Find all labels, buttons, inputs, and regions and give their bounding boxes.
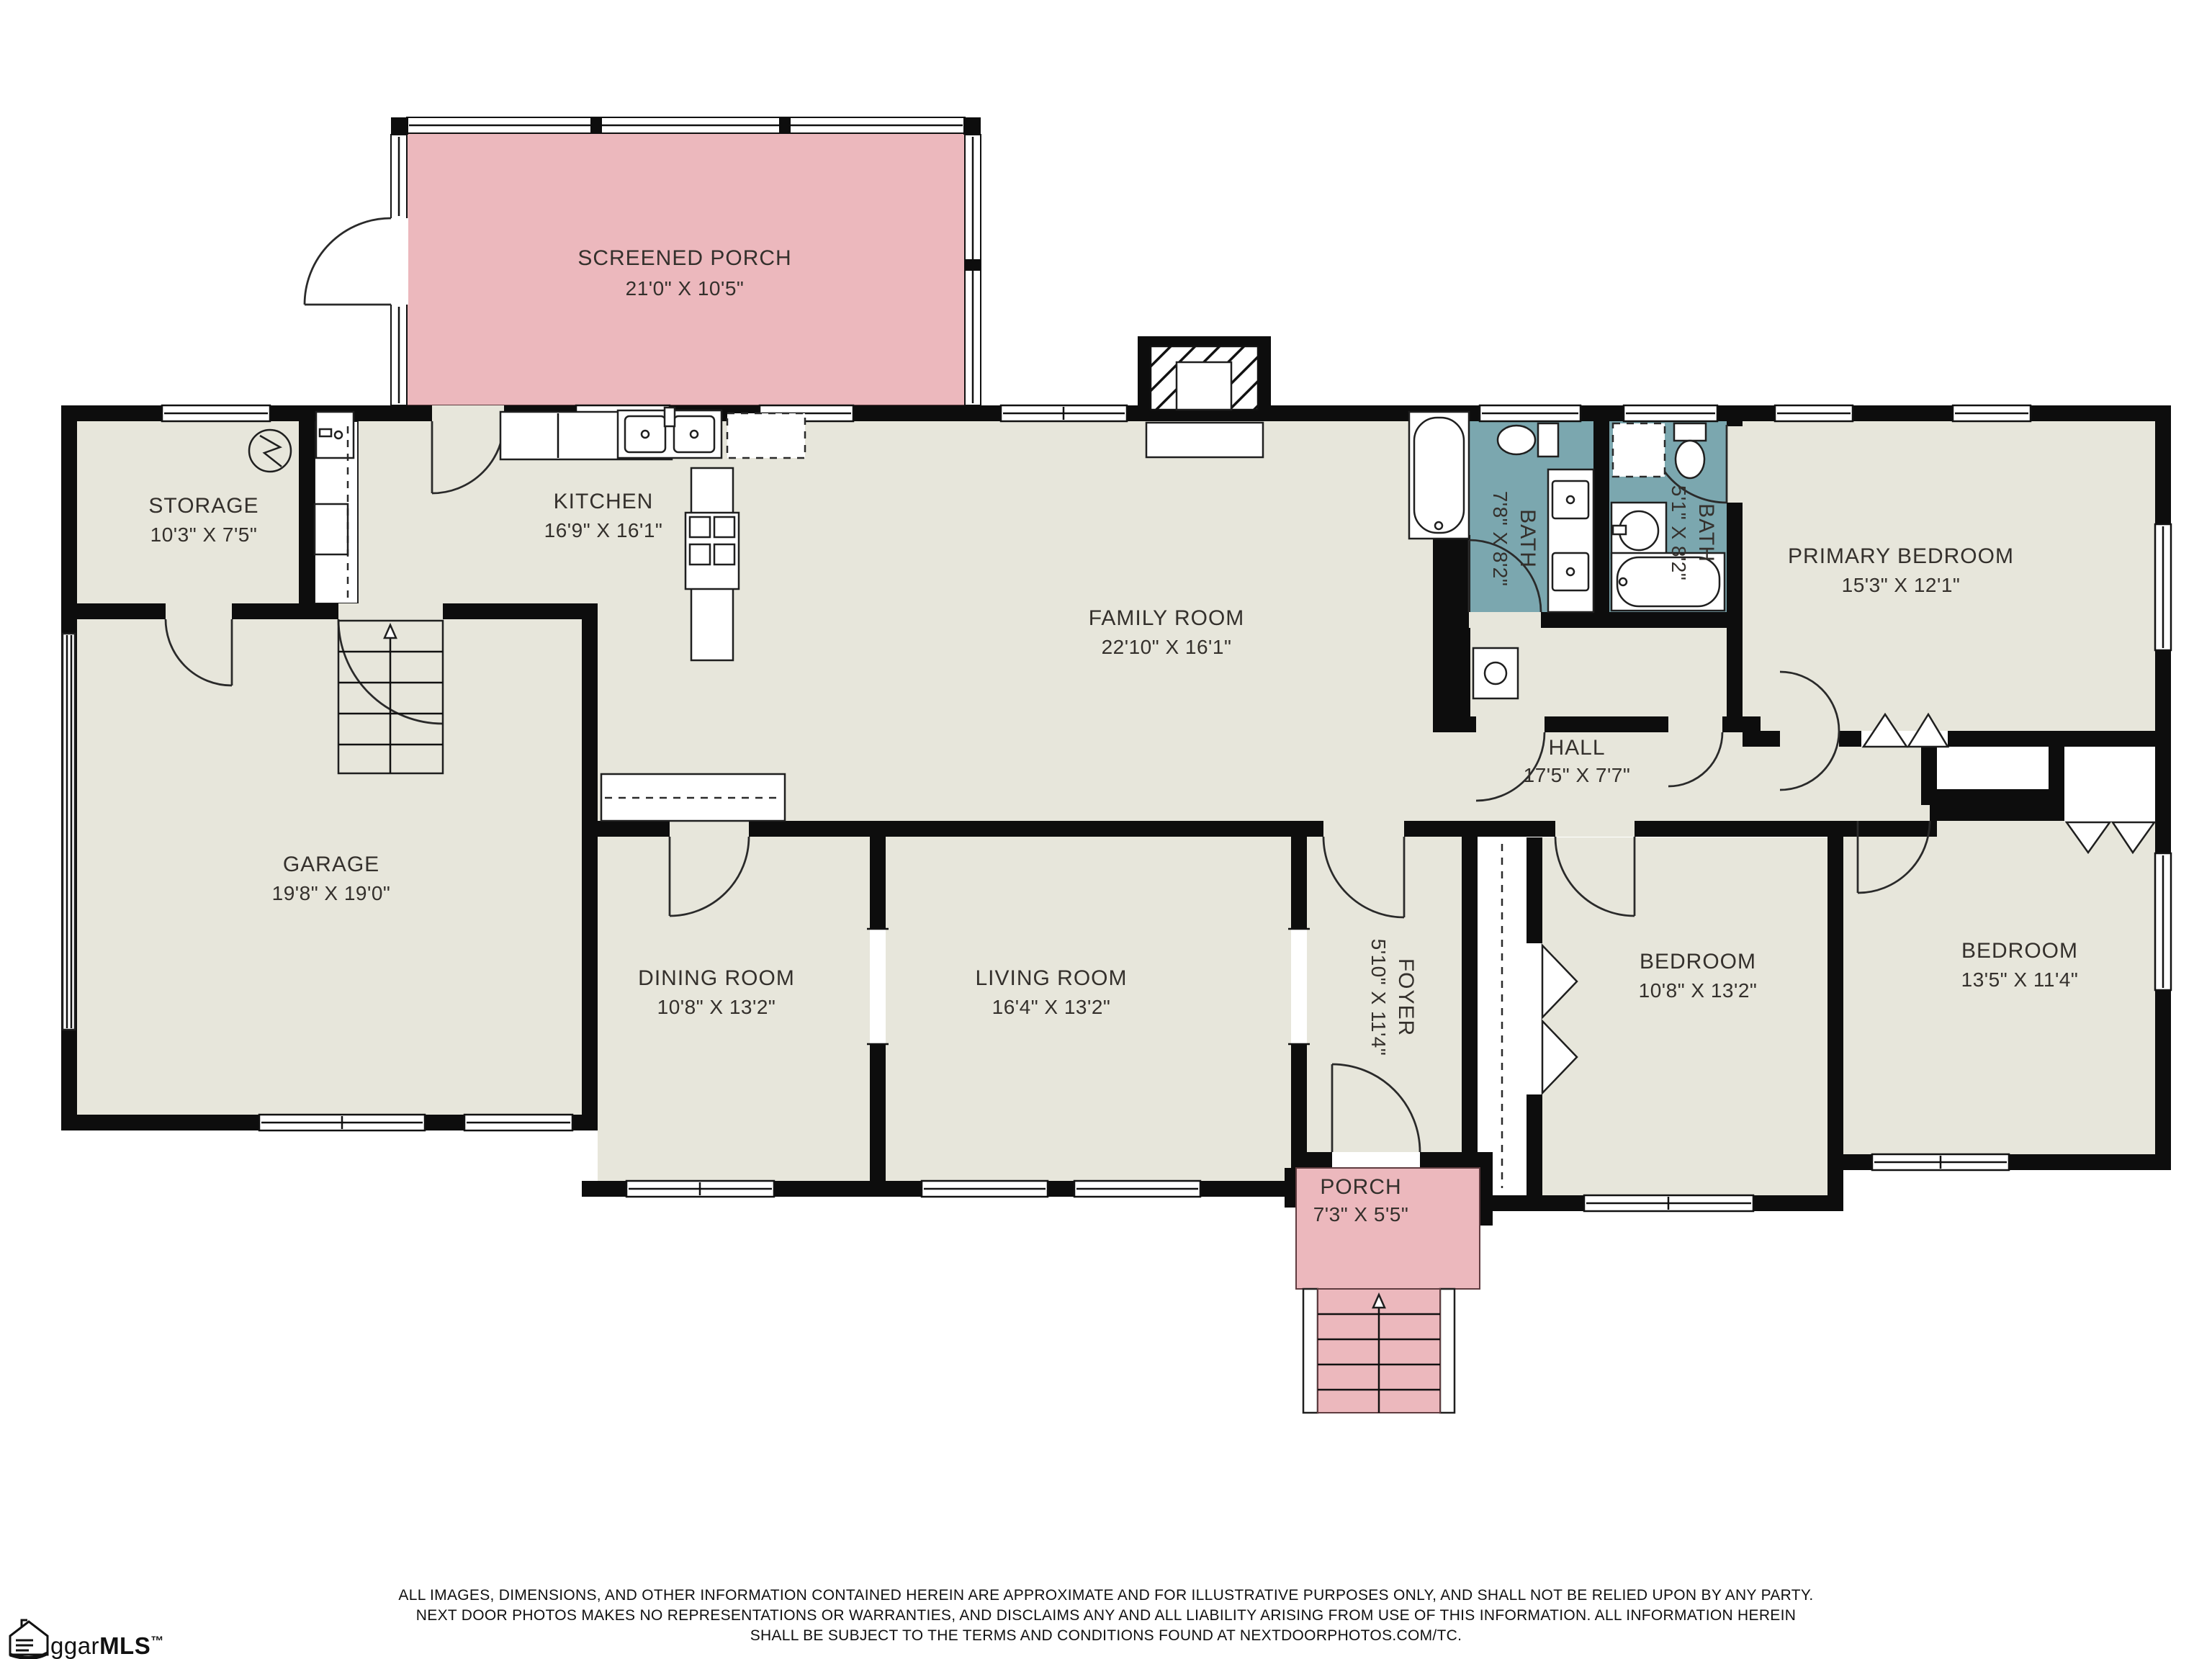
- fireplace: [1146, 346, 1263, 457]
- laundry-box: [1473, 648, 1518, 698]
- kitchen-island: [685, 468, 739, 660]
- footer-disclaimer: ALL IMAGES, DIMENSIONS, AND OTHER INFORM…: [398, 1587, 1813, 1644]
- window: [2155, 524, 2171, 650]
- floor-plan: SCREENED PORCH21'0" X 10'5" STORAGE10'3"…: [0, 0, 2212, 1659]
- porch-door-opening: [390, 218, 408, 305]
- window: [1480, 405, 1581, 421]
- footer-line-1: ALL IMAGES, DIMENSIONS, AND OTHER INFORM…: [398, 1587, 1813, 1604]
- window: [922, 1181, 1048, 1197]
- window: [162, 405, 270, 421]
- porch-steps: [1318, 1289, 1440, 1413]
- window: [1872, 1154, 2009, 1170]
- kitchen-sink: [618, 408, 721, 458]
- vanity-1: [1548, 469, 1593, 612]
- peninsula-counter: [601, 774, 785, 821]
- window: [1953, 405, 2031, 421]
- window: [1624, 405, 1717, 421]
- toilet-2: [1674, 423, 1706, 478]
- mls-logo: ggarMLS™: [10, 1620, 164, 1659]
- footer-line-2: NEXT DOOR PHOTOS MAKES NO REPRESENTATION…: [416, 1607, 1796, 1624]
- mls-logo-text: ggarMLS™: [50, 1632, 164, 1659]
- window: [1001, 405, 1127, 421]
- window: [1775, 405, 1853, 421]
- bathtub-1: [1409, 412, 1469, 539]
- floor-plan-page: SCREENED PORCH21'0" X 10'5" STORAGE10'3"…: [0, 0, 2212, 1659]
- window: [1584, 1195, 1753, 1211]
- window: [626, 1181, 774, 1197]
- closet-left: [1937, 747, 2049, 789]
- window: [1074, 1181, 1200, 1197]
- closet-right: [2064, 747, 2155, 792]
- window: [2155, 853, 2171, 990]
- room-floors: [77, 133, 2155, 1195]
- refrigerator: [727, 413, 805, 458]
- footer-line-3: SHALL BE SUBJECT TO THE TERMS AND CONDIT…: [750, 1627, 1462, 1644]
- garage-door: [63, 634, 75, 1030]
- window: [259, 1115, 425, 1130]
- shower-2: [1613, 423, 1665, 477]
- house-icon: [10, 1620, 48, 1658]
- toilet-1: [1498, 423, 1558, 457]
- steps-rail-left: [1303, 1289, 1318, 1413]
- storage-sink: [316, 412, 354, 458]
- bedroom-middle-floor: [1542, 837, 1827, 1195]
- steps-rail-right: [1440, 1289, 1455, 1413]
- window: [464, 1115, 572, 1130]
- vanity-2: [1611, 503, 1666, 559]
